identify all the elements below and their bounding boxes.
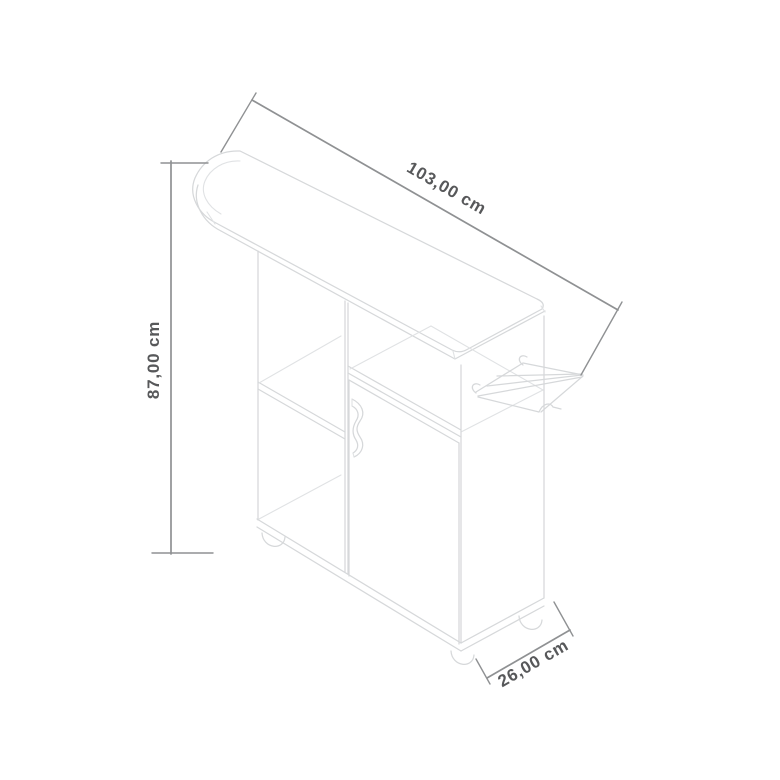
- ironing-board-top: [193, 151, 545, 359]
- side-wire-rack: [472, 356, 583, 412]
- width-dimension-label: 103,00 cm: [404, 158, 490, 219]
- board-edge-end: [455, 311, 545, 359]
- rack-wire-1: [478, 377, 582, 396]
- board-top-outline: [193, 151, 543, 352]
- width-witness-left: [221, 93, 256, 152]
- furniture-drawing: [193, 151, 583, 664]
- cabinet-body: [257, 251, 544, 651]
- dimension-depth: 26,00 cm: [476, 602, 573, 691]
- door-top-shelf-top: [348, 366, 461, 430]
- middle-shelf-front-bottom: [258, 389, 345, 439]
- dimension-height: 87,00 cm: [144, 161, 213, 554]
- cabinet-feet: [262, 533, 542, 664]
- depth-witness-left: [476, 659, 490, 684]
- rack-top-rail: [523, 363, 583, 375]
- upper-compartment-inner-right: [461, 390, 543, 432]
- height-dimension-label: 87,00 cm: [144, 321, 163, 399]
- middle-shelf-front-top: [258, 382, 345, 432]
- upper-compartment-inner-left: [350, 326, 431, 369]
- furniture-dimension-diagram: 103,00 cm 87,00 cm 26,00 cm: [0, 0, 780, 780]
- cabinet-bottom-front-bottom: [257, 527, 461, 651]
- rack-near-rail: [478, 397, 539, 412]
- cabinet-side-bottom-bottom: [461, 606, 544, 651]
- depth-witness-right: [554, 602, 573, 636]
- foot-front-left: [262, 533, 285, 546]
- door-handle-cap-bottom: [353, 453, 354, 457]
- width-witness-right: [581, 302, 622, 375]
- door-top-shelf-bottom: [348, 373, 461, 437]
- middle-shelf-inner-edge: [259, 336, 341, 383]
- dimension-diagram-page: 103,00 cm 87,00 cm 26,00 cm: [0, 0, 780, 780]
- dimension-width: 103,00 cm: [221, 93, 622, 375]
- depth-dimension-label: 26,00 cm: [495, 635, 572, 691]
- rack-left-rail: [476, 363, 523, 392]
- foot-front-right: [451, 651, 474, 664]
- rack-wire-3: [497, 374, 582, 376]
- rack-right-end: [541, 376, 583, 412]
- board-top-inner-band: [203, 161, 240, 214]
- board-edge-near: [221, 231, 455, 359]
- cabinet-side-bottom-top: [461, 598, 544, 643]
- cabinet-bottom-front-top: [257, 519, 461, 643]
- upper-compartment-inner-back: [431, 326, 543, 390]
- door-top-edge: [349, 380, 459, 443]
- bottom-shelf-inner-edge: [259, 475, 341, 519]
